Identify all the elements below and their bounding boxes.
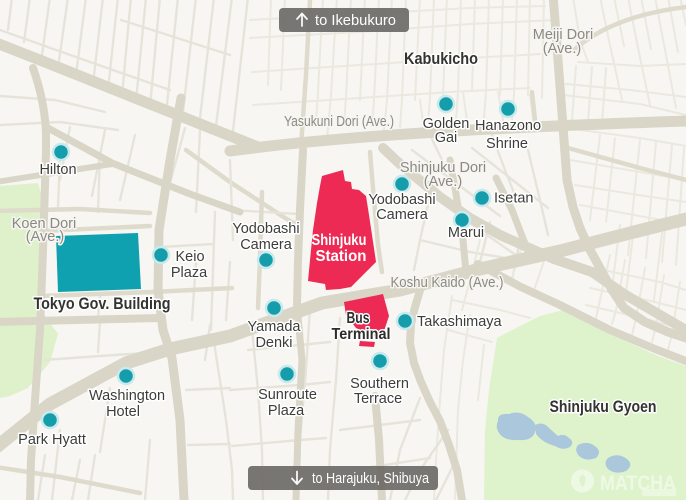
svg-text:Marui: Marui	[448, 225, 484, 241]
svg-text:Gai: Gai	[435, 130, 458, 146]
svg-text:to Ikebukuro: to Ikebukuro	[315, 12, 396, 29]
svg-text:Hilton: Hilton	[39, 162, 76, 178]
svg-text:Plaza: Plaza	[171, 265, 208, 281]
svg-text:Kabukicho: Kabukicho	[404, 49, 478, 68]
svg-text:Plaza: Plaza	[268, 403, 305, 419]
svg-text:Terminal: Terminal	[332, 326, 391, 343]
svg-text:Sunroute: Sunroute	[258, 387, 317, 403]
svg-text:Takashimaya: Takashimaya	[417, 314, 503, 330]
svg-text:(Ave.): (Ave.)	[424, 174, 462, 190]
svg-text:Station: Station	[316, 248, 367, 265]
svg-text:Hanazono: Hanazono	[475, 118, 541, 134]
svg-text:Koshu Kaido (Ave.): Koshu Kaido (Ave.)	[391, 275, 504, 291]
svg-text:Yamada: Yamada	[248, 319, 302, 335]
svg-text:Yodobashi: Yodobashi	[368, 192, 435, 208]
svg-text:Shrine: Shrine	[486, 136, 528, 152]
svg-text:Washington: Washington	[89, 388, 165, 404]
svg-text:Shinjuku: Shinjuku	[312, 232, 367, 249]
svg-text:Tokyo Gov. Building: Tokyo Gov. Building	[34, 294, 171, 313]
svg-text:Yodobashi: Yodobashi	[232, 221, 299, 237]
svg-text:Keio: Keio	[175, 249, 204, 265]
svg-text:Isetan: Isetan	[494, 191, 534, 207]
svg-text:(Ave.): (Ave.)	[26, 229, 64, 245]
svg-text:(Ave.): (Ave.)	[543, 41, 581, 57]
svg-text:Terrace: Terrace	[354, 391, 402, 407]
svg-text:Bus: Bus	[347, 310, 370, 327]
svg-text:Camera: Camera	[376, 207, 429, 223]
svg-text:to Harajuku, Shibuya: to Harajuku, Shibuya	[312, 470, 430, 487]
svg-text:Hotel: Hotel	[106, 404, 140, 420]
svg-text:Yasukuni Dori (Ave.): Yasukuni Dori (Ave.)	[284, 114, 394, 130]
svg-text:Southern: Southern	[350, 376, 409, 392]
svg-text:Camera: Camera	[240, 237, 293, 253]
svg-text:Denki: Denki	[255, 335, 292, 351]
svg-text:Park Hyatt: Park Hyatt	[18, 432, 86, 448]
svg-text:Shinjuku Gyoen: Shinjuku Gyoen	[550, 397, 657, 416]
